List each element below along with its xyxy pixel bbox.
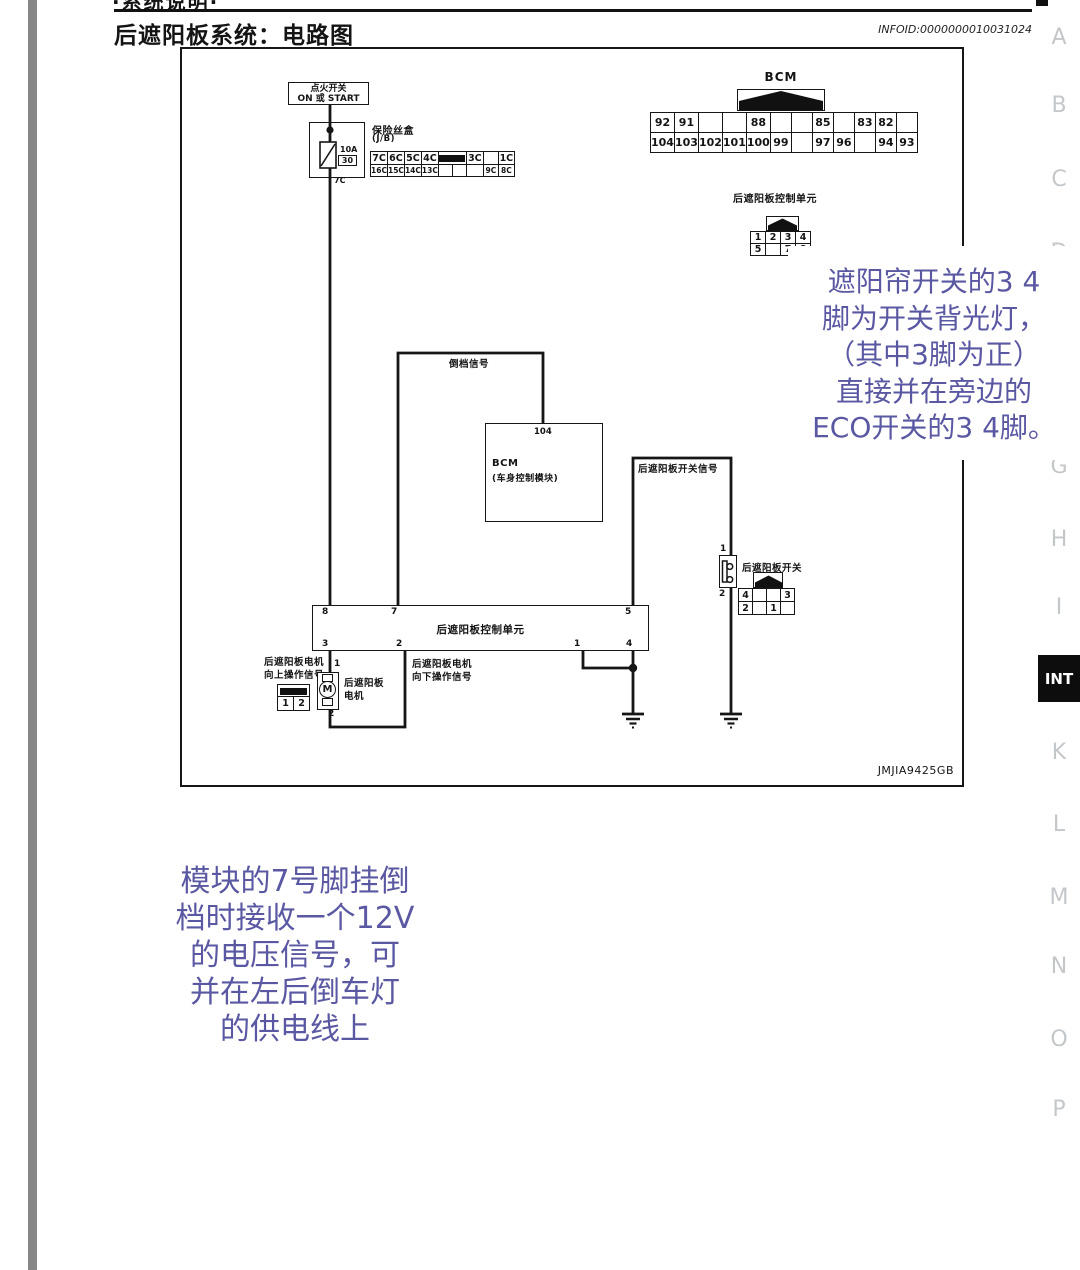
ignition-switch-line1: 点火开关 xyxy=(310,84,346,94)
right-note-line: 直接并在旁边的 xyxy=(788,374,1080,411)
bottom-note-line: 模块的7号脚挂倒 xyxy=(145,863,445,900)
switch-signal-label: 后遮阳板开关信号 xyxy=(638,461,718,475)
cu-pin-7: 7 xyxy=(391,607,397,617)
right-note-line: 遮阳帘开关的3 4 xyxy=(788,264,1080,301)
bcm-pin-104: 104 xyxy=(534,427,552,437)
infoid-code: INFOID:0000000010031024 xyxy=(732,23,1032,36)
section-tab-c: C xyxy=(1044,167,1074,192)
motor-down-label2: 向下操作信号 xyxy=(412,669,472,683)
sunshade-connector-keyway-box xyxy=(766,216,799,231)
motor-box: M xyxy=(317,672,339,710)
cu-pin-1: 1 xyxy=(574,639,580,649)
cu-pin-5: 5 xyxy=(625,607,631,617)
section-tab-b: B xyxy=(1044,93,1074,118)
fuse-number-box: 30 xyxy=(338,155,357,166)
switch-connector-table: 4 3 2 1 xyxy=(738,588,795,615)
bcm-subtext: (车身控制模块) xyxy=(492,471,558,484)
motor-up-label1: 后遮阳板电机 xyxy=(264,654,324,668)
motor-connector-key-cell xyxy=(278,685,310,697)
fuse-grid-key-cell xyxy=(438,152,466,165)
section-tab-k: K xyxy=(1044,740,1074,765)
motor-down-label1: 后遮阳板电机 xyxy=(412,656,472,670)
section-tab-p: P xyxy=(1044,1097,1074,1122)
page-edge-bar xyxy=(28,0,37,1270)
sunshade-switch-box xyxy=(719,555,737,588)
cu-pin-3: 3 xyxy=(322,639,328,649)
control-unit-box: 后遮阳板控制单元 xyxy=(312,605,649,651)
section-tab-h: H xyxy=(1044,527,1074,552)
header-rule xyxy=(114,9,1032,12)
cu-pin-2: 2 xyxy=(396,639,402,649)
reverse-signal-label: 倒档信号 xyxy=(449,356,489,370)
section-tab-n: N xyxy=(1044,954,1074,979)
motor-label2: 电机 xyxy=(344,688,364,702)
bottom-note-line: 并在左后倒车灯 xyxy=(145,974,445,1011)
bcm-text: BCM xyxy=(492,458,518,469)
switch-connector-keyway-box xyxy=(753,572,783,588)
bcm-connector-keyway-box xyxy=(737,89,825,111)
bcm-module-box: 104 BCM (车身控制模块) xyxy=(485,423,603,522)
right-annotation-note: 遮阳帘开关的3 4 脚为开关背光灯， （其中3脚为正） 直接并在旁边的 ECO开… xyxy=(788,246,1080,460)
motor-up-label2: 向上操作信号 xyxy=(264,667,324,681)
switch-pin-1: 1 xyxy=(720,544,726,554)
cu-pin-8: 8 xyxy=(322,607,328,617)
motor-symbol: M xyxy=(319,681,336,698)
motor-pin-2: 2 xyxy=(328,709,334,719)
figure-code: JMJIA9425GB xyxy=(830,764,954,777)
top-right-clipped-mark xyxy=(1036,0,1048,6)
right-note-line: （其中3脚为正） xyxy=(788,337,1080,374)
motor-label1: 后遮阳板 xyxy=(344,675,384,689)
bcm-pin-table: 9291 88 85 83 82 104103 102101 10099 97 … xyxy=(650,112,918,153)
fuse-wire-label: 7C xyxy=(334,176,345,185)
section-tab-int-active: INT xyxy=(1038,655,1080,702)
ignition-switch-box: 点火开关 ON 或 START xyxy=(288,82,369,105)
right-note-line: 脚为开关背光灯， xyxy=(788,301,1080,338)
cu-pin-4: 4 xyxy=(626,639,632,649)
section-tab-i: I xyxy=(1044,595,1074,620)
control-unit-label: 后遮阳板控制单元 xyxy=(313,622,648,637)
switch-pin-2: 2 xyxy=(719,589,725,599)
ignition-switch-line2: ON 或 START xyxy=(297,94,359,104)
bottom-note-line: 档时接收一个12V xyxy=(145,900,445,937)
fuse-block-label2: (J/B) xyxy=(372,134,395,144)
section-tab-l: L xyxy=(1044,812,1074,837)
bcm-connector-label: BCM xyxy=(751,70,811,84)
bottom-note-line: 的供电线上 xyxy=(145,1011,445,1048)
motor-pin-1: 1 xyxy=(334,659,340,669)
manual-page: { "page": { "top_partial_text": "·系统说明·"… xyxy=(0,0,1080,1270)
sunshade-connector-label: 后遮阳板控制单元 xyxy=(733,190,817,205)
bottom-annotation-note: 模块的7号脚挂倒 档时接收一个12V 的电压信号，可 并在左后倒车灯 的供电线上 xyxy=(145,863,445,1048)
fuse-connector-grid: 7C 6C 5C 4C 3C 1C 16C 15C 14C 13C 9C 8C xyxy=(370,151,515,177)
section-tab-a: A xyxy=(1044,25,1074,50)
fuse-rating: 10A xyxy=(340,145,357,154)
section-tab-o: O xyxy=(1044,1027,1074,1052)
motor-connector-table: 1 2 xyxy=(277,684,310,711)
page-title: 后遮阳板系统：电路图 xyxy=(114,16,354,50)
motor-terminal-bottom xyxy=(322,698,333,706)
section-tab-m: M xyxy=(1044,885,1074,910)
right-note-line: ECO开关的3 4脚。 xyxy=(788,410,1080,447)
bottom-note-line: 的电压信号，可 xyxy=(145,937,445,974)
